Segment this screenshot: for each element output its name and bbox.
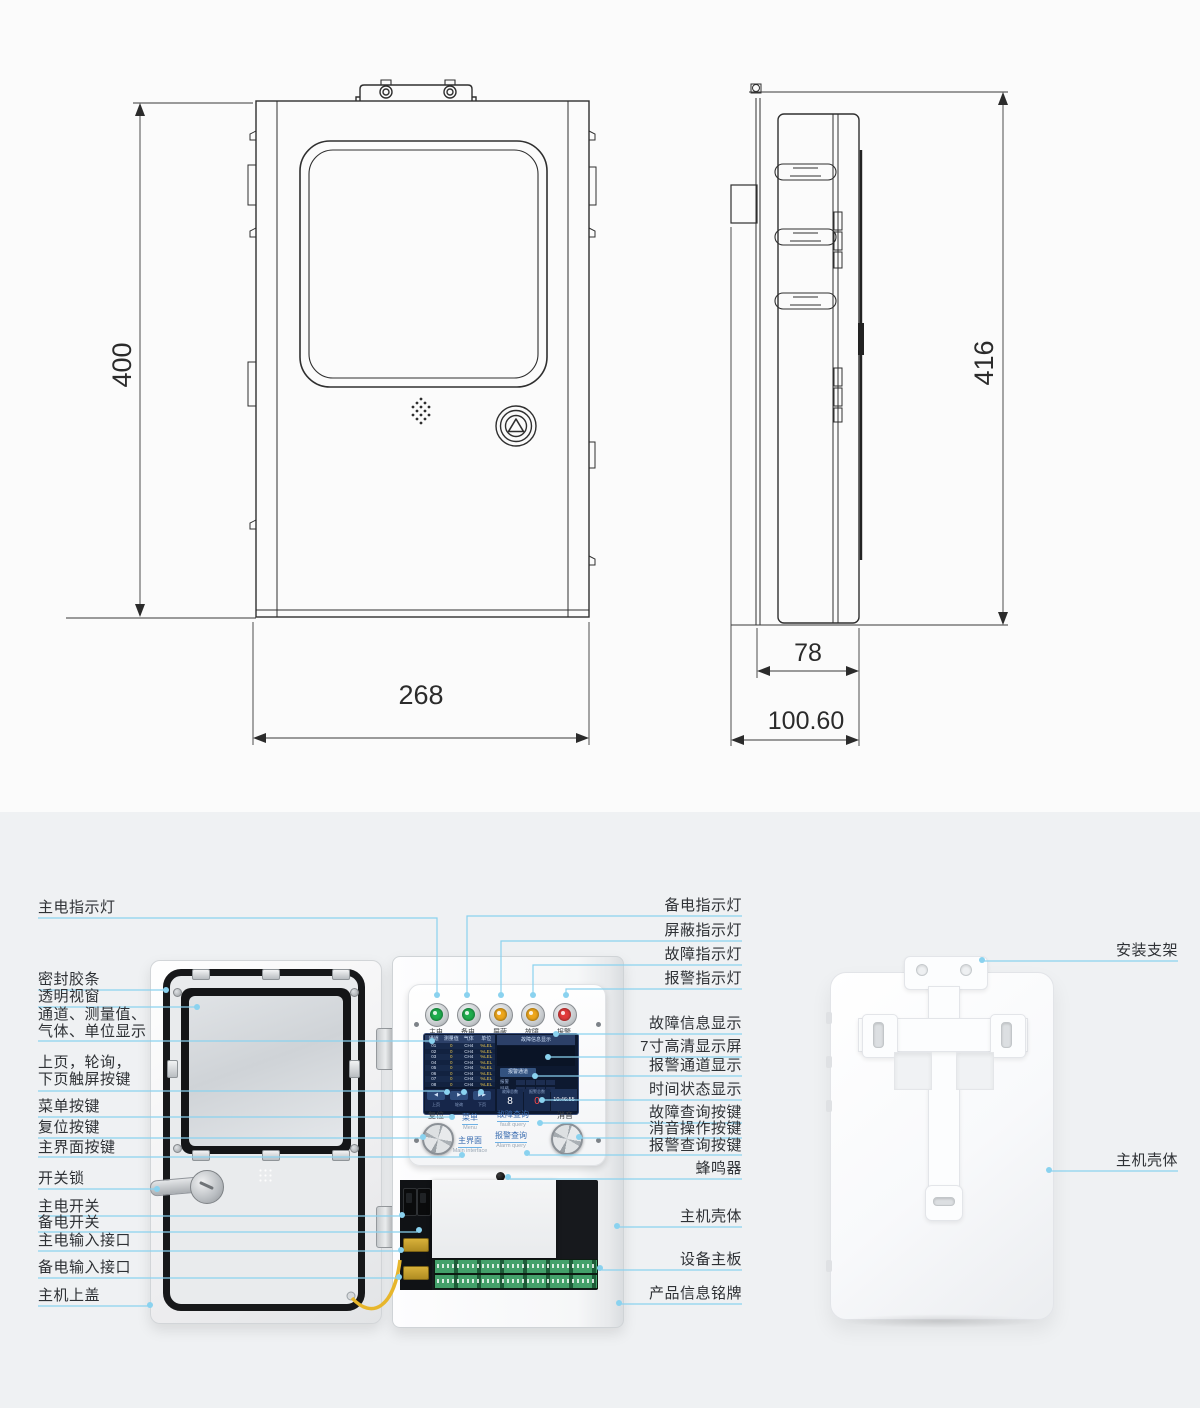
fault-light [521,1003,545,1027]
bracket-screw-hole [960,964,972,976]
callout-alarm-query-key: 报警查询按键 [649,1137,742,1155]
panel-screw [596,1022,601,1027]
callout-fault-light: 故障指示灯 [664,946,742,964]
prev-page-touch-button: ◀ [427,1091,445,1100]
mute-knob [551,1123,583,1155]
dimension-arrows [135,92,1008,745]
fault-total-counter: 故障总数 8 [497,1089,523,1111]
callout-main-housing: 主机壳体 [680,1208,742,1226]
callout-backup-power-input: 备电输入接口 [38,1259,131,1277]
callout-switch-lock: 开关锁 [38,1170,85,1188]
next-page-label: 下页 [473,1102,491,1108]
mainboard-cover-plate [432,1180,556,1258]
main-interface-touch-key: 主界面Main interface [448,1136,492,1155]
front-height-dimension: 400 [107,342,137,387]
speaker-grille-icon [412,398,431,425]
panel-screw [414,1022,419,1027]
prev-page-label: 上页 [427,1102,445,1108]
bracket-recess [894,1052,932,1090]
callout-time-status-display: 时间状态显示 [649,1081,742,1099]
callout-channel-display-2: 气体、单位显示 [38,1023,147,1041]
callout-buzzer: 蜂鸣器 [695,1160,742,1178]
callout-fault-info-display: 故障信息显示 [649,1015,742,1033]
callout-mute-operation-key: 消音操作按键 [649,1120,742,1138]
callout-reset-key: 复位按键 [38,1119,100,1137]
window-clamp [332,969,350,980]
shield-light [489,1003,513,1027]
door-screw [173,1144,182,1153]
housing-side-tab [826,1260,832,1272]
window-clamp [167,1060,178,1078]
callout-product-nameplate: 产品信息铭牌 [649,1285,742,1303]
window-clamp [262,969,280,980]
panel-screw [414,1138,419,1143]
transparent-window-glass [189,996,343,1146]
next-page-touch-button: ▶▶ [473,1091,491,1100]
callout-alarm-light: 报警指示灯 [664,970,742,988]
door-screw [173,988,182,997]
backup-power-input-terminal [403,1266,429,1280]
screen-table-header: 通道测量值 气体单位 [425,1035,495,1043]
bracket-recess [956,1052,994,1090]
callout-touch-keys-1: 上页，轮询， [38,1054,131,1072]
alarm-light [553,1003,577,1027]
fault-query-touch-key: 故障查询fault query [491,1110,535,1129]
door-button-drawing [496,406,536,446]
screen-fault-info-title: 故障信息显示 [497,1035,575,1045]
callout-top-cover: 主机上盖 [38,1287,100,1305]
screen-alarm-channel-button: 报警通道 [500,1068,536,1077]
front-view-drawing [248,80,596,617]
backup-power-switch [417,1188,431,1216]
callout-channel-display-1: 通道、测量值、 [38,1006,147,1024]
main-power-switch [403,1188,417,1216]
screen-clock: 10:46:55 [551,1089,577,1111]
housing-side-tab [826,1012,832,1024]
window-clamp [349,1060,360,1078]
door-screw [350,1144,359,1153]
callout-backup-power-switch: 备电开关 [38,1214,100,1232]
bracket-left-slot [873,1022,884,1048]
main-power-input-terminal [403,1238,429,1252]
terminal-block-row [434,1259,598,1274]
screen-table-row: 080CH4%LEL [425,1082,495,1088]
back-housing-shadow [842,1314,1040,1328]
door-speaker-dots [258,1168,274,1184]
callout-sealing-strip: 密封胶条 [38,971,100,989]
alarm-query-touch-key: 报警查询Alarm query [489,1131,533,1150]
product-spec-page: 400 268 416 78 100.60 主电 备电 屏蔽 故障 报警 [0,0,1200,1408]
alarm-total-counter: 报警总数 0 [524,1089,550,1111]
dimension-drawings: 400 268 416 78 100.60 [0,0,1200,812]
callout-touch-keys-2: 下页触屏按键 [38,1071,131,1089]
callout-7inch-hd-screen: 7寸高清显示屏 [640,1038,742,1056]
dimension-lines [66,92,1008,746]
menu-touch-key: 菜单Menu [448,1113,492,1132]
callout-backup-power-light: 备电指示灯 [664,897,742,915]
side-total-depth-dimension: 100.60 [768,707,844,735]
poll-touch-button: ▶ [450,1091,468,1100]
mute-knob-label: 消音 [549,1110,581,1121]
poll-label: 轮询 [450,1102,468,1108]
front-width-dimension: 268 [398,680,443,710]
housing-side-tab [826,1056,832,1068]
side-depth-dimension: 78 [794,639,822,667]
callout-main-power-light: 主电指示灯 [38,899,116,917]
side-view-drawing [731,84,864,625]
bracket-screw-hole [916,964,928,976]
screen-alarm-cells [516,1080,556,1085]
callout-alarm-channel-display: 报警通道显示 [649,1057,742,1075]
callout-shield-light: 屏蔽指示灯 [664,922,742,940]
window-clamp [192,1150,210,1161]
housing-side-tab [826,1100,832,1112]
callout-back-housing: 主机壳体 [1116,1152,1178,1170]
callout-menu-key: 菜单按键 [38,1098,100,1116]
callout-main-power-input: 主电输入接口 [38,1232,131,1250]
bracket-latch-slot [933,1197,955,1206]
window-clamp [192,969,210,980]
callout-transparent-window: 透明视窗 [38,988,100,1006]
screen-fault-info-area [497,1046,575,1066]
terminal-block-row [434,1274,598,1289]
door-screw [350,988,359,997]
callout-device-mainboard: 设备主板 [680,1251,742,1269]
callout-mounting-bracket: 安装支架 [1116,942,1178,960]
panel-screw [596,1138,601,1143]
window-clamp [332,1150,350,1161]
main-power-light [425,1003,449,1027]
backup-power-light [457,1003,481,1027]
callout-main-screen-key: 主界面按键 [38,1139,116,1157]
window-clamp [262,1150,280,1161]
side-height-dimension: 416 [969,340,999,385]
bracket-right-slot [1001,1022,1012,1048]
